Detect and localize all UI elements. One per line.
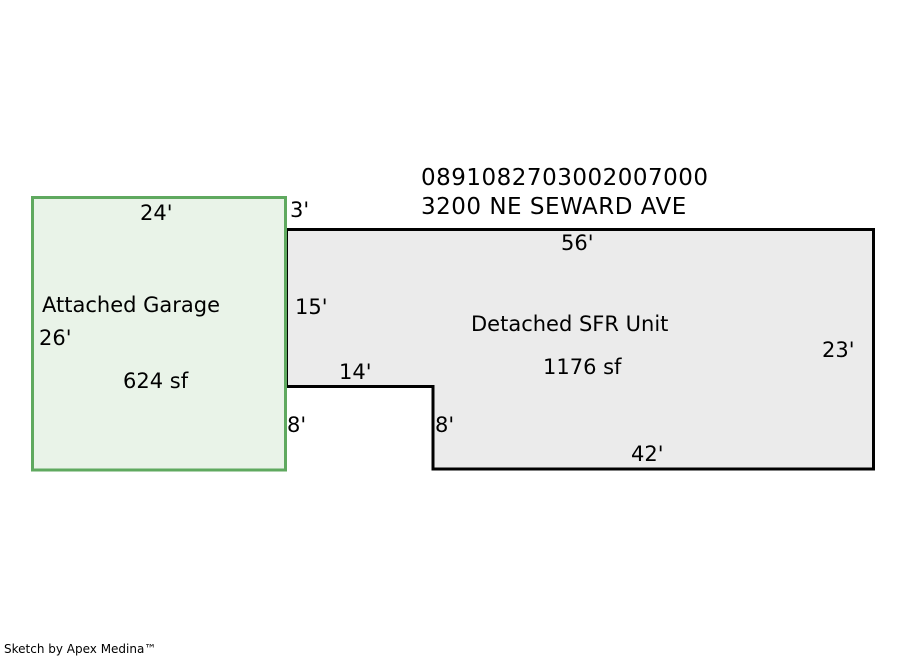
garage-area: 624 sf [123,370,188,393]
dim-sfr-notch-left: 8' [287,414,306,437]
parcel-id: 0891082703002007000 [421,166,709,191]
dim-garage-left: 26' [39,327,72,350]
sketch-shapes [0,0,900,661]
property-address: 3200 NE SEWARD AVE [421,195,687,220]
dim-sfr-notch-right: 8' [435,414,454,437]
dim-sfr-left-upper: 15' [295,296,328,319]
dim-sfr-top: 56' [561,232,594,255]
dim-garage-top: 24' [140,202,173,225]
dim-sfr-offset-top: 3' [290,199,309,222]
property-sketch: 0891082703002007000 3200 NE SEWARD AVE 2… [0,0,900,661]
sketch-credit: Sketch by Apex Medina™ [4,643,156,656]
dim-sfr-right: 23' [822,339,855,362]
sfr-unit-outline [287,230,874,470]
garage-label: Attached Garage [42,294,220,317]
sfr-label: Detached SFR Unit [471,313,668,336]
dim-sfr-bottom: 42' [631,443,664,466]
dim-sfr-notch-top: 14' [339,361,372,384]
sfr-area: 1176 sf [543,356,621,379]
